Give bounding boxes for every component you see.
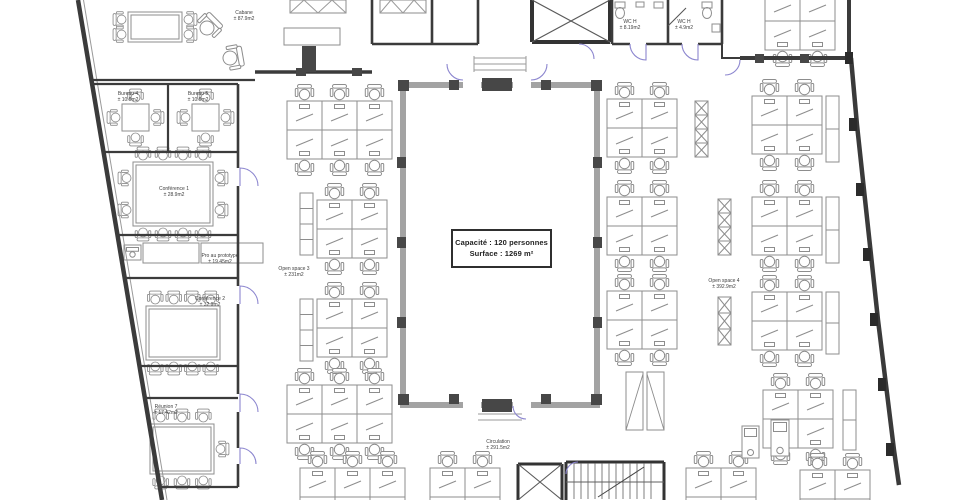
- toilet-icon: [702, 2, 712, 19]
- sink-icon: [712, 24, 720, 32]
- locker-cabinet: [300, 193, 313, 255]
- counter: [143, 243, 199, 263]
- column: [800, 54, 809, 63]
- chair-icon: [221, 110, 234, 126]
- room-label-bureau-4: Bureau 4± 10.9m2: [118, 91, 139, 104]
- desk-cluster: [607, 275, 677, 366]
- chair-icon: [175, 147, 191, 160]
- room-label-open-space-4: Open space 4± 392.9m2: [708, 278, 739, 291]
- desk-cluster: [607, 83, 677, 174]
- desk-cluster: [317, 184, 387, 275]
- locker-cabinet: [826, 197, 839, 263]
- chair-icon: [151, 110, 164, 126]
- desk-cluster: [752, 181, 822, 272]
- desk-cluster: [752, 80, 822, 171]
- chair-icon: [166, 362, 182, 375]
- chair-icon: [308, 452, 326, 467]
- chair-icon: [325, 184, 343, 199]
- chair-icon: [295, 85, 313, 100]
- urinal-icon: [636, 2, 644, 7]
- sink-icon: [654, 2, 663, 8]
- chair-icon: [195, 147, 211, 160]
- chair-icon: [118, 202, 131, 218]
- chair-icon: [473, 452, 491, 467]
- chair-icon: [330, 160, 348, 175]
- copier-icon: [742, 426, 759, 458]
- room-label-open-space-3: Open space 3± 231m2: [278, 266, 309, 279]
- meeting-table: [284, 28, 340, 45]
- room-label-reunion-7: Réunion 7± 17.42m2: [154, 404, 178, 417]
- armchair-icon: [221, 44, 245, 71]
- capacity-box: Capacité : 120 personnes Surface : 1269 …: [451, 229, 552, 268]
- chair-icon: [650, 350, 668, 365]
- chair-icon: [806, 374, 824, 389]
- room-label-wc-h-1: WC H± 8.19m2: [620, 19, 641, 32]
- room-label-conference-1: Conférence 1± 28.9m2: [159, 186, 189, 199]
- room-label-bureau-5: Bureau 5± 10.9m2: [188, 91, 209, 104]
- chair-icon: [330, 369, 348, 384]
- surface-line: Surface : 1269 m²: [470, 249, 534, 260]
- column: [755, 54, 764, 63]
- toilet-icon: [615, 2, 625, 19]
- desk-cluster: [686, 452, 756, 500]
- chair-icon: [650, 275, 668, 290]
- chair-icon: [113, 12, 126, 28]
- chair-icon: [378, 452, 396, 467]
- chair-icon: [360, 283, 378, 298]
- armchair-icon: [194, 10, 225, 41]
- chair-icon: [438, 452, 456, 467]
- chair-icon: [760, 351, 778, 366]
- chair-icon: [343, 452, 361, 467]
- chair-icon: [843, 454, 861, 469]
- desk-cluster: [607, 181, 677, 272]
- entrance-pier: [302, 46, 316, 72]
- chair-icon: [135, 147, 151, 160]
- locker-cabinet: [718, 297, 731, 345]
- chair-icon: [650, 158, 668, 173]
- atrium-threshold-top: [482, 78, 512, 91]
- chair-icon: [795, 80, 813, 95]
- chair-icon: [216, 441, 229, 457]
- chair-icon: [650, 181, 668, 196]
- floor-plan: Cabane± 87.9m2WC H± 8.19m2WC H± 4.9m2Bur…: [0, 0, 960, 500]
- room-label-prototype: Pro au prototype± 19.45m2: [202, 253, 239, 266]
- chair-icon: [184, 12, 197, 28]
- desk-cluster: [800, 454, 870, 500]
- chair-icon: [615, 256, 633, 271]
- chair-icon: [166, 291, 182, 304]
- chair-icon: [771, 374, 789, 389]
- room-label-cabane: Cabane± 87.9m2: [234, 10, 255, 23]
- chair-icon: [215, 202, 228, 218]
- chair-icon: [184, 27, 197, 43]
- chair-icon: [295, 369, 313, 384]
- capacity-line: Capacité : 120 personnes: [455, 238, 548, 249]
- double-door-unit: [626, 372, 664, 430]
- entrance-steps-top: [474, 56, 526, 72]
- room-label-wc-h-2: WC H± 4.9m2: [675, 19, 693, 32]
- core-bottom: [518, 462, 664, 500]
- chair-icon: [760, 80, 778, 95]
- chair-icon: [760, 155, 778, 170]
- chair-icon: [760, 256, 778, 271]
- chair-icon: [795, 276, 813, 291]
- chair-icon: [107, 110, 120, 126]
- room-label-conference-2: Conférence 2± 32.9m2: [195, 296, 225, 309]
- chair-icon: [147, 291, 163, 304]
- copier-icon: [771, 420, 789, 456]
- locker-cabinet: [826, 292, 839, 354]
- top-walls: [255, 46, 372, 76]
- chair-icon: [325, 259, 343, 274]
- chair-icon: [118, 170, 131, 186]
- locker-cabinet: [718, 199, 731, 255]
- chair-icon: [184, 362, 200, 375]
- chair-icon: [215, 170, 228, 186]
- chair-icon: [198, 133, 214, 146]
- chair-icon: [650, 256, 668, 271]
- core-elevator-top: [532, 0, 610, 42]
- chair-icon: [760, 181, 778, 196]
- chair-icon: [615, 275, 633, 290]
- chair-icon: [694, 452, 712, 467]
- chair-icon: [128, 133, 144, 146]
- chair-icon: [360, 259, 378, 274]
- chair-icon: [615, 83, 633, 98]
- chair-icon: [365, 369, 383, 384]
- chair-icon: [325, 283, 343, 298]
- chair-icon: [113, 27, 126, 43]
- chair-icon: [365, 85, 383, 100]
- canopy: [290, 0, 346, 13]
- atrium-threshold-bottom: [482, 399, 512, 412]
- chair-icon: [650, 83, 668, 98]
- desk-cluster: [752, 276, 822, 367]
- chair-icon: [147, 362, 163, 375]
- chair-icon: [760, 276, 778, 291]
- room-label-circulation: Circulation± 291.5m2: [486, 439, 510, 452]
- desk-cluster: [287, 369, 392, 460]
- chair-icon: [360, 184, 378, 199]
- locker-cabinet: [843, 390, 856, 450]
- locker-cabinet: [826, 96, 839, 162]
- meeting-table: [150, 409, 229, 489]
- desk-cluster: [317, 283, 387, 374]
- chair-icon: [795, 181, 813, 196]
- desk-cluster: [300, 452, 405, 500]
- chair-icon: [615, 181, 633, 196]
- column: [352, 68, 362, 76]
- core-stairs-top: [372, 0, 478, 44]
- chair-icon: [808, 454, 826, 469]
- chair-icon: [795, 351, 813, 366]
- chair-icon: [615, 158, 633, 173]
- meeting-table: [113, 12, 197, 43]
- locker-cabinet: [300, 299, 313, 361]
- stairs-treads: [574, 463, 651, 499]
- chair-icon: [795, 256, 813, 271]
- chair-icon: [177, 110, 190, 126]
- locker-cabinet: [695, 101, 708, 157]
- desk-cluster: [430, 452, 500, 500]
- desk-cluster: [287, 85, 392, 176]
- chair-icon: [295, 160, 313, 175]
- chair-icon: [330, 85, 348, 100]
- chair-icon: [795, 155, 813, 170]
- entrance-steps-bottom: [478, 414, 522, 420]
- chair-icon: [615, 350, 633, 365]
- chair-icon: [365, 160, 383, 175]
- chair-icon: [196, 409, 212, 422]
- chair-icon: [203, 362, 219, 375]
